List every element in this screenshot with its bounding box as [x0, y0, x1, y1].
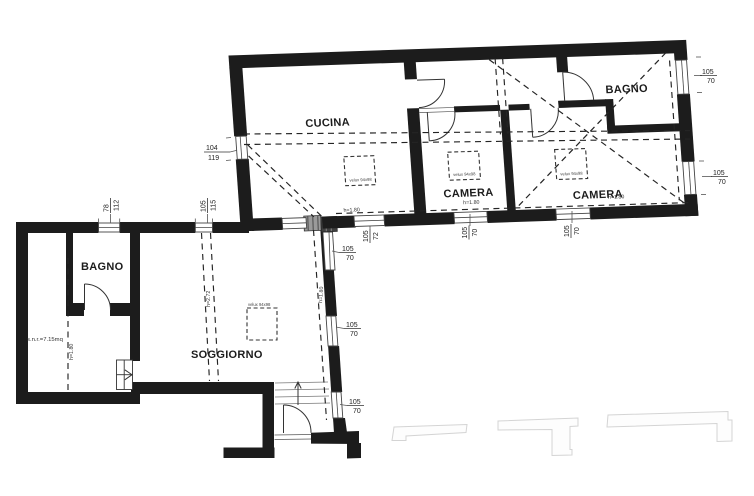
svg-text:70: 70: [574, 227, 581, 235]
svg-text:70: 70: [707, 78, 715, 85]
svg-text:105: 105: [702, 69, 714, 76]
svg-text:SOGGIORNO: SOGGIORNO: [191, 349, 263, 361]
svg-text:70: 70: [353, 408, 361, 415]
svg-text:h=1.80: h=1.80: [608, 194, 625, 201]
svg-text:h=1.80: h=1.80: [463, 200, 480, 207]
svg-text:velux 94x98: velux 94x98: [560, 171, 583, 177]
svg-text:115: 115: [211, 200, 218, 211]
svg-text:105: 105: [713, 170, 725, 177]
svg-text:BAGNO: BAGNO: [605, 83, 648, 96]
svg-text:s.n.r.=7.15mq: s.n.r.=7.15mq: [27, 337, 63, 343]
svg-text:CUCINA: CUCINA: [305, 116, 350, 129]
svg-text:78: 78: [104, 204, 111, 212]
svg-text:105: 105: [346, 322, 358, 329]
svg-text:velux 94x98: velux 94x98: [453, 171, 476, 177]
svg-text:CAMERA: CAMERA: [443, 187, 494, 201]
svg-text:105: 105: [564, 225, 571, 237]
svg-text:velux 94x98: velux 94x98: [248, 302, 271, 307]
svg-text:104: 104: [206, 145, 218, 152]
svg-text:105: 105: [349, 399, 361, 406]
svg-text:112: 112: [114, 200, 121, 211]
svg-text:70: 70: [346, 255, 354, 262]
svg-text:velux 94x98: velux 94x98: [349, 177, 372, 183]
svg-text:105: 105: [342, 246, 354, 253]
svg-text:105: 105: [201, 200, 208, 212]
svg-text:105: 105: [462, 227, 469, 239]
svg-text:119: 119: [208, 155, 219, 162]
svg-text:70: 70: [350, 331, 358, 338]
svg-text:105: 105: [363, 230, 370, 242]
svg-text:70: 70: [472, 229, 479, 237]
svg-text:BAGNO: BAGNO: [81, 261, 124, 273]
svg-text:h=1.80: h=1.80: [318, 286, 325, 303]
svg-text:h=2.72: h=2.72: [206, 291, 212, 307]
svg-text:70: 70: [718, 179, 726, 186]
svg-text:72: 72: [373, 232, 380, 240]
svg-text:h=1.80: h=1.80: [69, 344, 75, 360]
